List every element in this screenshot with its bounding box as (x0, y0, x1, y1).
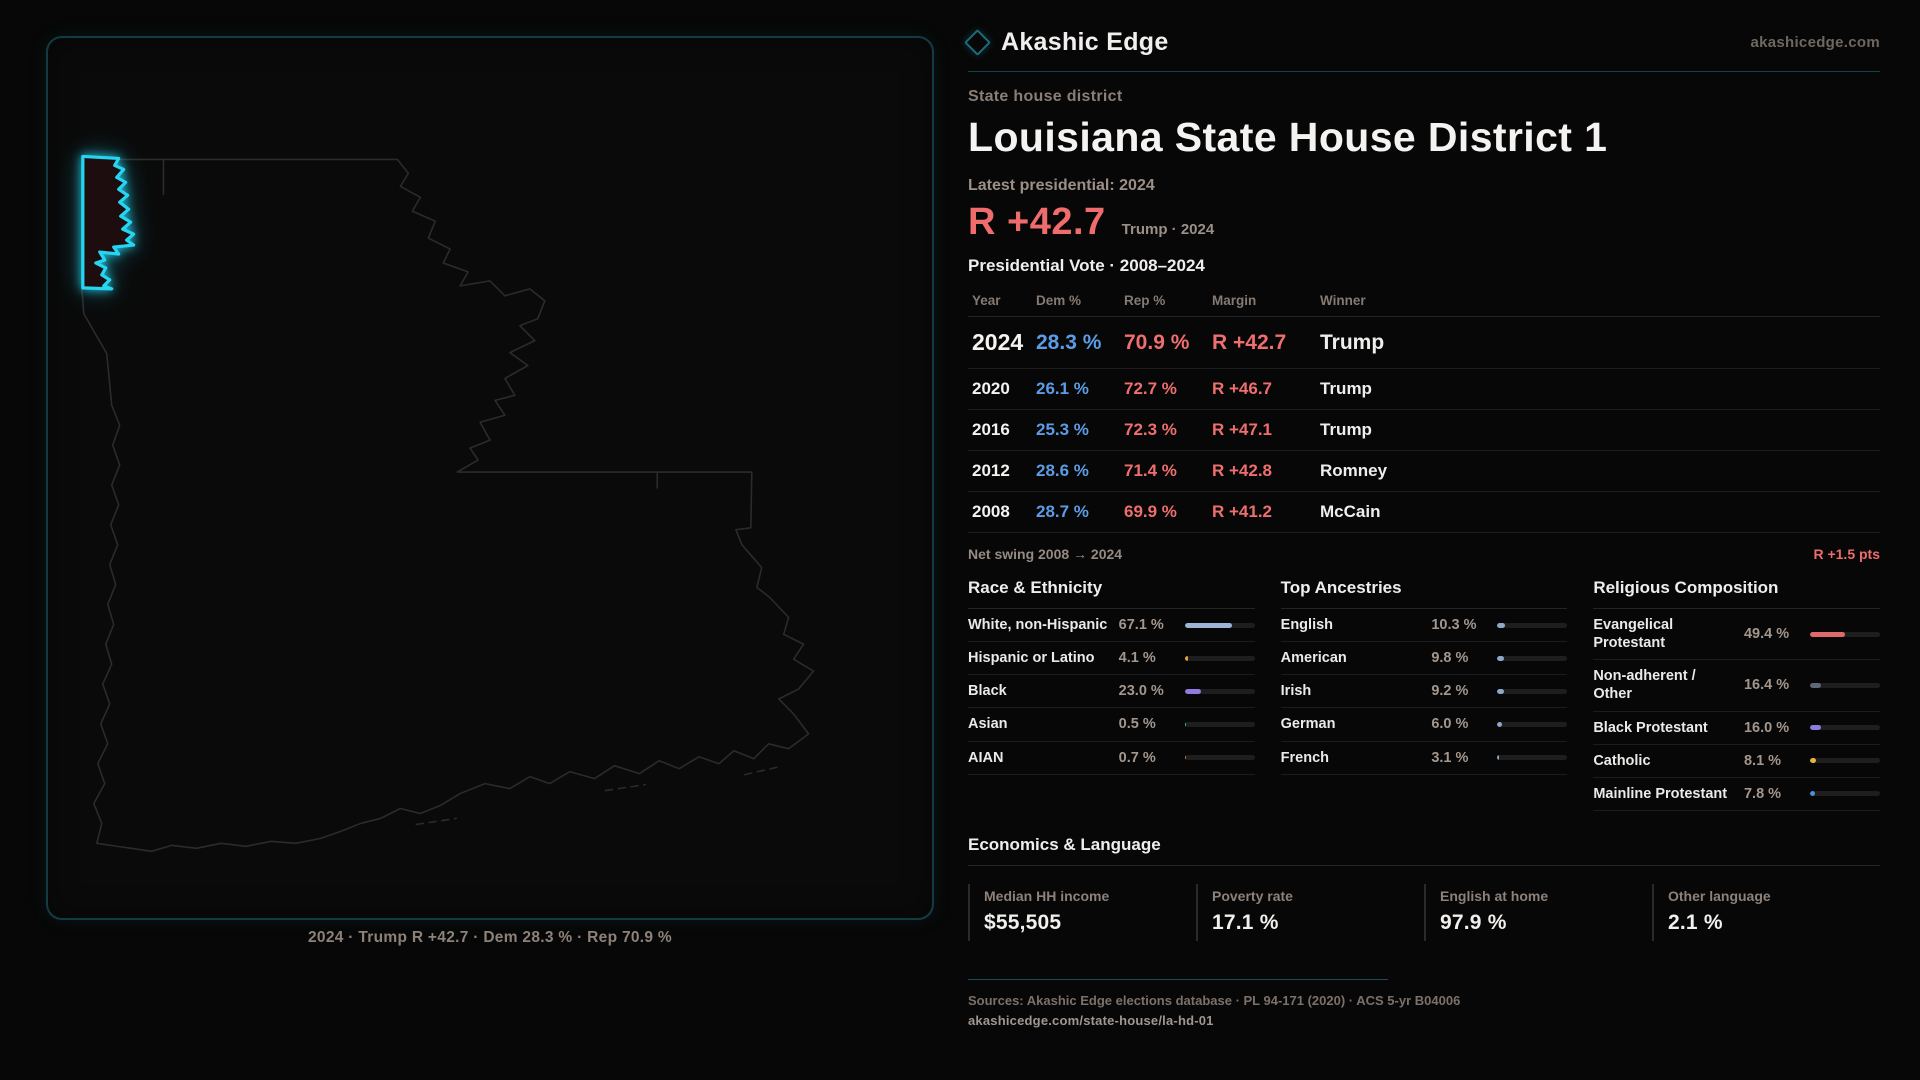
stat-median-hh-income: Median HH income $55,505 (968, 884, 1196, 941)
district-type-kicker: State house district (968, 88, 1880, 106)
demo-bar-fill (1810, 791, 1815, 796)
demo-bar-fill (1497, 656, 1504, 661)
presidential-vote-table: Year Dem % Rep % Margin Winner 2024 28.3… (968, 284, 1880, 533)
demo-bar (1497, 656, 1567, 661)
demo-value: 16.0 % (1744, 720, 1800, 736)
cell-year: 2016 (968, 420, 1032, 440)
map-caption: 2024 · Trump R +42.7 · Dem 28.3 % · Rep … (46, 929, 934, 947)
demo-value: 0.5 % (1119, 716, 1175, 732)
race-ethnicity-section: Race & Ethnicity White, non-Hispanic 67.… (968, 578, 1255, 811)
demo-value: 10.3 % (1431, 617, 1487, 633)
demographics-grid: Race & Ethnicity White, non-Hispanic 67.… (968, 578, 1880, 811)
cell-year: 2024 (968, 329, 1032, 356)
demo-label: White, non-Hispanic (968, 616, 1109, 634)
demo-bar-fill (1810, 683, 1821, 688)
demo-bar-fill (1497, 722, 1501, 727)
section-title: Top Ancestries (1281, 578, 1568, 609)
cell-winner: Romney (1316, 461, 1880, 481)
demo-label: Black (968, 682, 1109, 700)
list-item: American 9.8 % (1281, 642, 1568, 675)
site-domain-link[interactable]: akashicedge.com (1750, 34, 1880, 51)
stat-value: 17.1 % (1212, 911, 1424, 935)
headline-margin-value: R +42.7 (968, 201, 1106, 244)
net-swing-label: Net swing 2008 → 2024 (968, 546, 1122, 562)
list-item: Catholic 8.1 % (1593, 745, 1880, 778)
list-item: English 10.3 % (1281, 609, 1568, 642)
cell-rep: 72.7 % (1120, 379, 1208, 399)
coastal-islands (416, 767, 779, 825)
demo-bar (1810, 758, 1880, 763)
economics-section: Economics & Language Median HH income $5… (968, 835, 1880, 941)
demo-value: 8.1 % (1744, 753, 1800, 769)
cell-winner: Trump (1316, 420, 1880, 440)
brand: Akashic Edge (968, 28, 1169, 57)
list-item: AIAN 0.7 % (968, 742, 1255, 775)
demo-label: American (1281, 649, 1422, 667)
table-row: 2024 28.3 % 70.9 % R +42.7 Trump (968, 317, 1880, 369)
demo-bar (1810, 683, 1880, 688)
list-item: Black 23.0 % (968, 675, 1255, 708)
cell-rep: 70.9 % (1120, 331, 1208, 355)
economics-divider (968, 865, 1880, 866)
list-item: Mainline Protestant 7.8 % (1593, 778, 1880, 811)
stat-english-at-home: English at home 97.9 % (1424, 884, 1652, 941)
state-outline (82, 156, 814, 851)
demo-bar (1497, 623, 1567, 628)
demo-label: Mainline Protestant (1593, 785, 1734, 803)
stat-value: 97.9 % (1440, 911, 1652, 935)
demo-label: German (1281, 715, 1422, 733)
demo-bar-fill (1497, 623, 1504, 628)
demo-bar (1185, 623, 1255, 628)
table-row: 2020 26.1 % 72.7 % R +46.7 Trump (968, 369, 1880, 410)
header-divider (968, 71, 1880, 72)
col-header-rep: Rep % (1120, 293, 1208, 308)
cell-winner: Trump (1316, 379, 1880, 399)
table-row: 2012 28.6 % 71.4 % R +42.8 Romney (968, 451, 1880, 492)
cell-margin: R +42.7 (1208, 331, 1316, 355)
section-title: Race & Ethnicity (968, 578, 1255, 609)
religious-composition-section: Religious Composition Evangelical Protes… (1593, 578, 1880, 811)
demo-bar-fill (1185, 656, 1188, 661)
demo-label: Evangelical Protestant (1593, 616, 1734, 652)
cell-rep: 69.9 % (1120, 502, 1208, 522)
detail-panel: Akashic Edge akashicedge.com State house… (968, 28, 1880, 1028)
demo-label: AIAN (968, 749, 1109, 767)
footer-divider (968, 979, 1388, 980)
demo-bar (1185, 656, 1255, 661)
demo-value: 16.4 % (1744, 677, 1800, 693)
demo-label: Irish (1281, 682, 1422, 700)
stat-label: English at home (1440, 888, 1652, 904)
stat-label: Other language (1668, 888, 1880, 904)
section-title: Economics & Language (968, 835, 1880, 855)
demo-value: 9.2 % (1431, 683, 1487, 699)
cell-rep: 72.3 % (1120, 420, 1208, 440)
list-item: Black Protestant 16.0 % (1593, 712, 1880, 745)
stat-label: Median HH income (984, 888, 1196, 904)
demo-label: French (1281, 749, 1422, 767)
demo-value: 67.1 % (1119, 617, 1175, 633)
demo-value: 49.4 % (1744, 626, 1800, 642)
cell-year: 2020 (968, 379, 1032, 399)
table-row: 2008 28.7 % 69.9 % R +41.2 McCain (968, 492, 1880, 533)
district-1-shape[interactable] (83, 156, 134, 288)
sources-text: Sources: Akashic Edge elections database… (968, 993, 1880, 1008)
diamond-logo-icon (964, 29, 991, 56)
vote-table-title: Presidential Vote · 2008–2024 (968, 256, 1880, 276)
latest-presidential-label: Latest presidential: 2024 (968, 177, 1880, 195)
cell-year: 2012 (968, 461, 1032, 481)
demo-bar-fill (1810, 632, 1845, 637)
demo-label: Catholic (1593, 752, 1734, 770)
economics-grid: Median HH income $55,505 Poverty rate 17… (968, 884, 1880, 941)
list-item: Hispanic or Latino 4.1 % (968, 642, 1255, 675)
list-item: German 6.0 % (1281, 708, 1568, 741)
col-header-dem: Dem % (1032, 293, 1120, 308)
demo-value: 23.0 % (1119, 683, 1175, 699)
demo-bar (1497, 755, 1567, 760)
net-swing-row: Net swing 2008 → 2024 R +1.5 pts (968, 533, 1880, 566)
cell-dem: 26.1 % (1032, 379, 1120, 399)
demo-bar (1185, 722, 1255, 727)
demo-bar-fill (1810, 725, 1821, 730)
headline-margin-row: R +42.7 Trump · 2024 (968, 201, 1880, 244)
top-ancestries-section: Top Ancestries English 10.3 % American 9… (1281, 578, 1568, 811)
stat-value: $55,505 (984, 911, 1196, 935)
cell-margin: R +41.2 (1208, 502, 1316, 522)
col-header-margin: Margin (1208, 293, 1316, 308)
stat-value: 2.1 % (1668, 911, 1880, 935)
section-title: Religious Composition (1593, 578, 1880, 609)
header-bar: Akashic Edge akashicedge.com (968, 28, 1880, 57)
demo-label: Black Protestant (1593, 719, 1734, 737)
headline-margin-context: Trump · 2024 (1122, 221, 1215, 238)
table-header-row: Year Dem % Rep % Margin Winner (968, 284, 1880, 317)
cell-year: 2008 (968, 502, 1032, 522)
cell-margin: R +46.7 (1208, 379, 1316, 399)
louisiana-map (48, 38, 932, 918)
demo-bar (1810, 632, 1880, 637)
footer: Sources: Akashic Edge elections database… (968, 979, 1880, 1028)
demo-value: 4.1 % (1119, 650, 1175, 666)
cell-margin: R +42.8 (1208, 461, 1316, 481)
demo-bar-fill (1497, 755, 1499, 760)
cell-dem: 25.3 % (1032, 420, 1120, 440)
demo-bar (1810, 791, 1880, 796)
demo-label: Asian (968, 715, 1109, 733)
demo-value: 6.0 % (1431, 716, 1487, 732)
demo-bar-fill (1185, 623, 1232, 628)
list-item: Non-adherent / Other 16.4 % (1593, 660, 1880, 711)
net-swing-value: R +1.5 pts (1813, 546, 1880, 562)
demo-value: 0.7 % (1119, 750, 1175, 766)
demo-value: 7.8 % (1744, 786, 1800, 802)
demo-bar-fill (1185, 689, 1201, 694)
demo-bar (1497, 722, 1567, 727)
demo-label: English (1281, 616, 1422, 634)
stat-poverty-rate: Poverty rate 17.1 % (1196, 884, 1424, 941)
demo-label: Hispanic or Latino (968, 649, 1109, 667)
demo-bar (1497, 689, 1567, 694)
col-header-winner: Winner (1316, 293, 1880, 308)
demo-value: 9.8 % (1431, 650, 1487, 666)
table-row: 2016 25.3 % 72.3 % R +47.1 Trump (968, 410, 1880, 451)
district-map-panel (46, 36, 934, 920)
cell-dem: 28.6 % (1032, 461, 1120, 481)
cell-margin: R +47.1 (1208, 420, 1316, 440)
page-title: Louisiana State House District 1 (968, 114, 1880, 161)
cell-dem: 28.7 % (1032, 502, 1120, 522)
brand-name: Akashic Edge (1001, 28, 1169, 57)
permalink[interactable]: akashicedge.com/state-house/la-hd-01 (968, 1013, 1880, 1028)
cell-winner: Trump (1316, 331, 1880, 355)
demo-label: Non-adherent / Other (1593, 667, 1734, 703)
list-item: Irish 9.2 % (1281, 675, 1568, 708)
demo-bar-fill (1810, 758, 1816, 763)
demo-bar (1185, 755, 1255, 760)
demo-bar (1810, 725, 1880, 730)
list-item: Evangelical Protestant 49.4 % (1593, 609, 1880, 660)
demo-bar-fill (1497, 689, 1503, 694)
stat-other-language: Other language 2.1 % (1652, 884, 1880, 941)
cell-dem: 28.3 % (1032, 331, 1120, 355)
list-item: White, non-Hispanic 67.1 % (968, 609, 1255, 642)
list-item: French 3.1 % (1281, 742, 1568, 775)
demo-value: 3.1 % (1431, 750, 1487, 766)
cell-rep: 71.4 % (1120, 461, 1208, 481)
cell-winner: McCain (1316, 502, 1880, 522)
stat-label: Poverty rate (1212, 888, 1424, 904)
list-item: Asian 0.5 % (968, 708, 1255, 741)
col-header-year: Year (968, 293, 1032, 308)
demo-bar (1185, 689, 1255, 694)
